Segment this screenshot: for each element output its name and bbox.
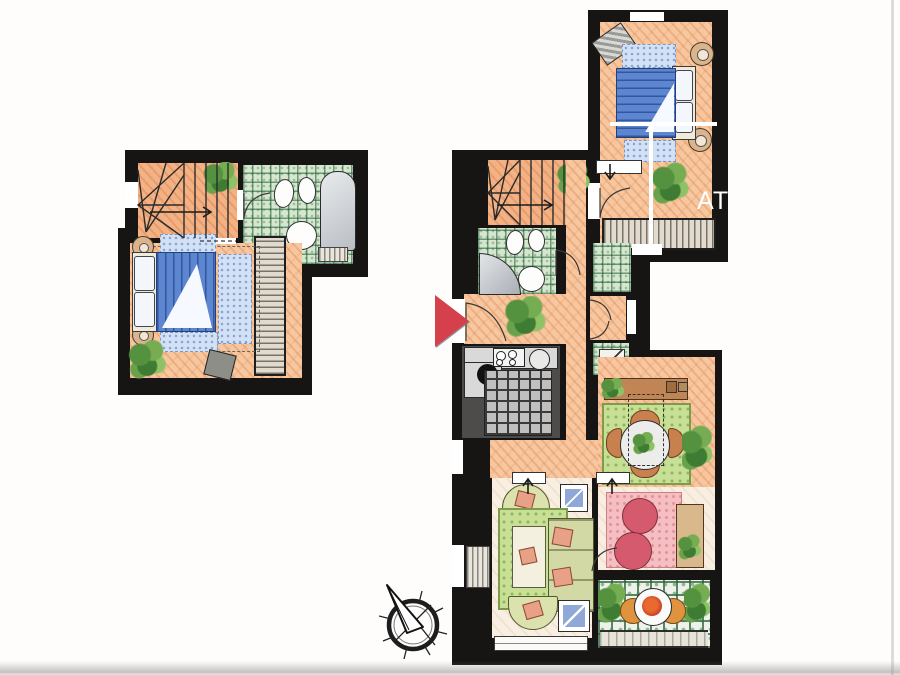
compass-icon [379,583,449,661]
overlay-line-vertical [649,122,653,255]
scan-edge-right [891,0,894,675]
scan-shadow-bottom [0,661,900,675]
overlay-line-horizontal [610,122,717,126]
wall-annotation-label: AT [697,187,729,216]
entrance-marker-icon [435,295,469,347]
scanned-floor-plan-page: AT [0,0,900,675]
